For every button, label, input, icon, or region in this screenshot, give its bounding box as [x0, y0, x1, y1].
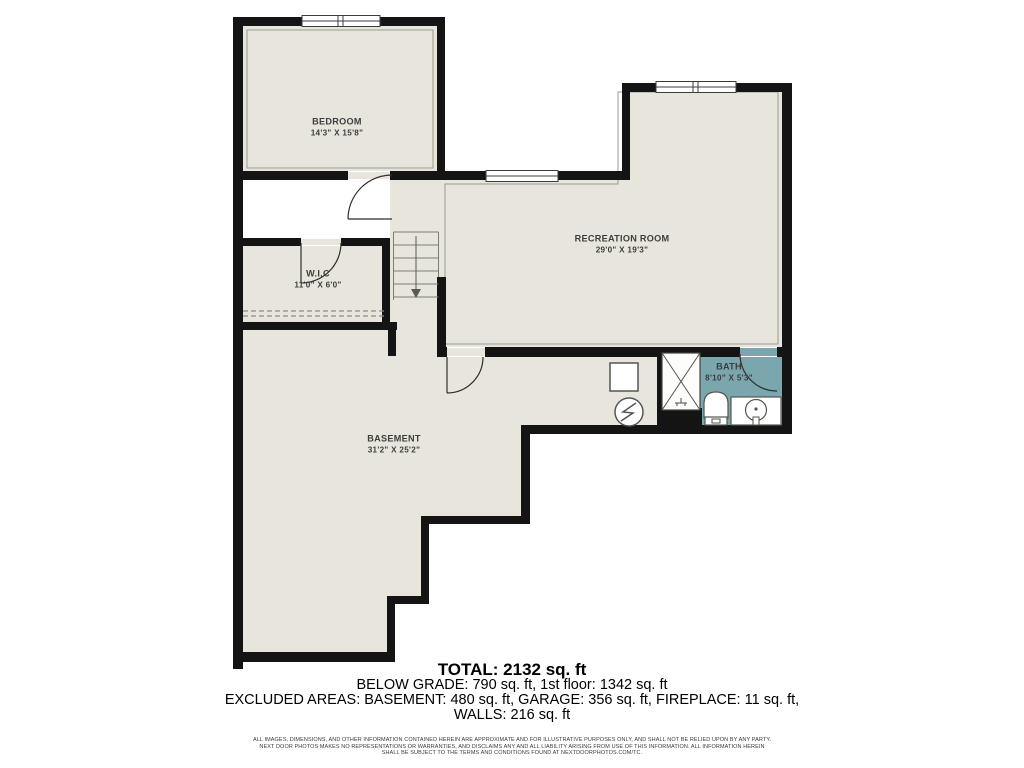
left-exterior-wall: [233, 17, 243, 669]
recreation-dims: 29'0" X 19'3": [575, 245, 670, 255]
recreation-floor: [441, 88, 786, 353]
bedroom-door-swing-icon: [348, 175, 392, 219]
recreation-right-window-icon: [656, 82, 736, 93]
basement-dims: 31'2" X 25'2": [367, 445, 420, 455]
bedroom-floor: [239, 22, 441, 177]
floor-plan-drawing: [0, 0, 1024, 768]
recreation-name: RECREATION ROOM: [575, 234, 670, 245]
bath-door-tint: [740, 348, 777, 356]
disclaimer: ALL IMAGES, DIMENSIONS, AND OTHER INFORM…: [0, 737, 1024, 757]
walls-area-text: WALLS: 216 sq. ft: [0, 708, 1024, 723]
wic-name: W.I.C: [294, 269, 341, 280]
bedroom-dims: 14'3" X 15'8": [311, 128, 364, 138]
right-exterior-wall: [782, 83, 792, 434]
basement-bottom-wall: [233, 652, 395, 662]
excluded-areas-text: EXCLUDED AREAS: BASEMENT: 480 sq. ft, GA…: [0, 693, 1024, 708]
recreation-label: RECREATION ROOM 29'0" X 19'3": [575, 234, 670, 255]
disclaimer-line-3: SHALL BE SUBJECT TO THE TERMS AND CONDIT…: [0, 750, 1024, 757]
step1-bottom-wall: [421, 516, 530, 524]
bedroom-right-wall: [437, 17, 445, 179]
step1-left-wall: [421, 516, 429, 604]
stair-left-stub-wall: [388, 330, 396, 356]
stair-right-wall: [437, 277, 446, 355]
recreation-bottom-wall: [437, 347, 792, 357]
wic-label: W.I.C 11'0" X 6'0": [294, 269, 341, 290]
electrical-panel-icon: [615, 398, 643, 426]
total-area-text: TOTAL: 2132 sq. ft: [0, 662, 1024, 678]
basement-label: BASEMENT 31'2" X 25'2": [367, 434, 420, 455]
wic-bottom-wall: [233, 322, 397, 330]
bedroom-bottom-wall: [233, 171, 630, 180]
bedroom-window-icon: [302, 16, 380, 27]
shower-icon: [662, 353, 700, 410]
bath-label: BATH 8'10" X 5'3": [705, 362, 753, 383]
furnace-icon: [610, 363, 638, 391]
wic-dims: 11'0" X 6'0": [294, 280, 341, 290]
basement-floor: [239, 328, 661, 657]
bath-dims: 8'10" X 5'3": [705, 373, 753, 383]
area-summary: TOTAL: 2132 sq. ft BELOW GRADE: 790 sq. …: [0, 662, 1024, 723]
basement-name: BASEMENT: [367, 434, 420, 445]
basement-right-wall: [521, 425, 530, 524]
toilet-icon: [704, 392, 728, 425]
lower-right-exterior-wall: [521, 425, 792, 434]
bedroom-label: BEDROOM 14'3" X 15'8": [311, 117, 364, 138]
step2-left-wall: [387, 596, 395, 661]
floor-plan-page: BEDROOM 14'3" X 15'8" W.I.C 11'0" X 6'0"…: [0, 0, 1024, 768]
bath-name: BATH: [705, 362, 753, 373]
below-grade-text: BELOW GRADE: 790 sq. ft, 1st floor: 1342…: [0, 678, 1024, 693]
sink-vanity-icon: [731, 397, 781, 425]
recreation-step-wall: [622, 83, 630, 178]
recreation-left-window-icon: [486, 171, 558, 182]
bedroom-name: BEDROOM: [311, 117, 364, 128]
